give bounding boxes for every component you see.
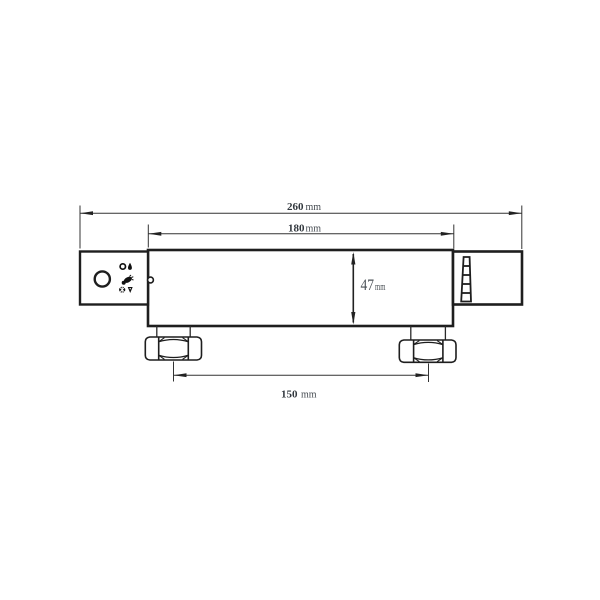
svg-text:mm: mm: [306, 202, 322, 213]
svg-text:260: 260: [287, 201, 304, 213]
svg-text:mm: mm: [306, 224, 322, 235]
svg-text:180: 180: [288, 223, 305, 235]
svg-text:150: 150: [281, 389, 298, 401]
svg-text:47: 47: [361, 277, 375, 294]
svg-text:mm: mm: [301, 390, 317, 401]
svg-text:mm: mm: [375, 281, 386, 293]
